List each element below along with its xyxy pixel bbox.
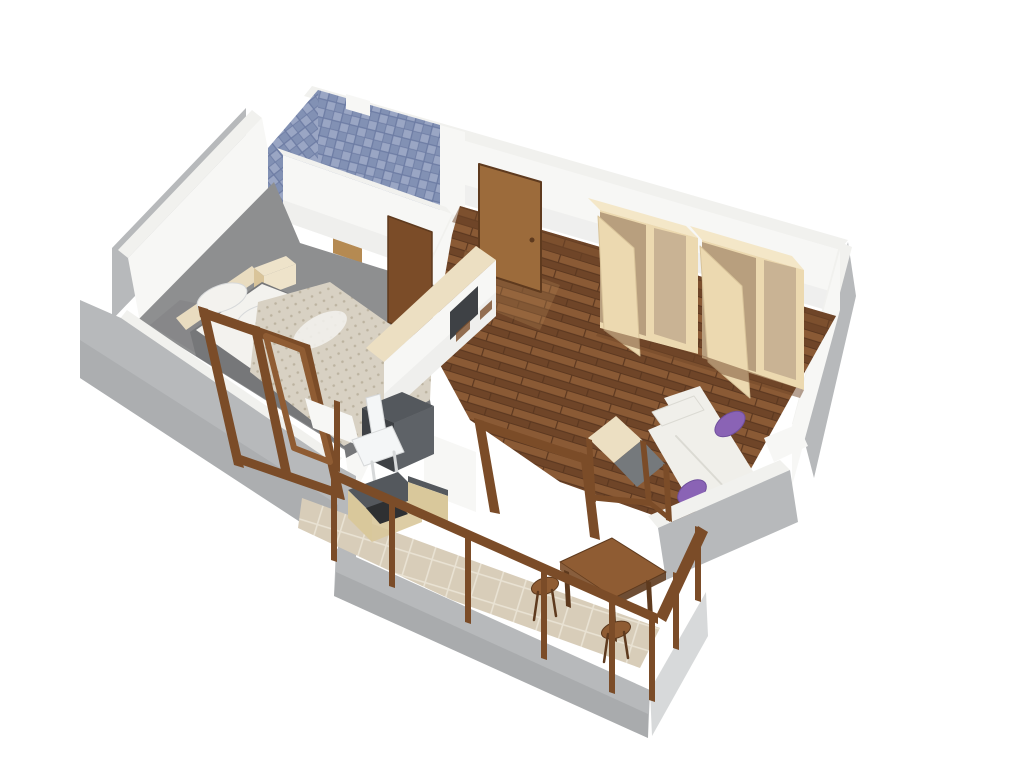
balcony-corner-post-south bbox=[649, 612, 655, 702]
balcony-corner-post-east bbox=[695, 526, 701, 602]
balcony-mullion-1 bbox=[389, 496, 395, 588]
balcony-mullion-east bbox=[673, 572, 679, 650]
balcony-corner-post-west-riser bbox=[334, 400, 340, 472]
balcony-mullion-3 bbox=[541, 564, 547, 660]
wardrobe-1-panel bbox=[654, 228, 686, 344]
apartment-3d-floorplan-render bbox=[0, 0, 1024, 768]
wardrobe-2-panel bbox=[764, 260, 796, 380]
floorplan-stage bbox=[0, 0, 1024, 768]
balcony-corner-post-west bbox=[331, 470, 337, 562]
entry-door-handle bbox=[530, 238, 535, 243]
balcony-mullion-2 bbox=[465, 530, 471, 624]
balcony-mullion-4 bbox=[609, 596, 615, 694]
bathroom-east-wall-white bbox=[440, 125, 465, 218]
